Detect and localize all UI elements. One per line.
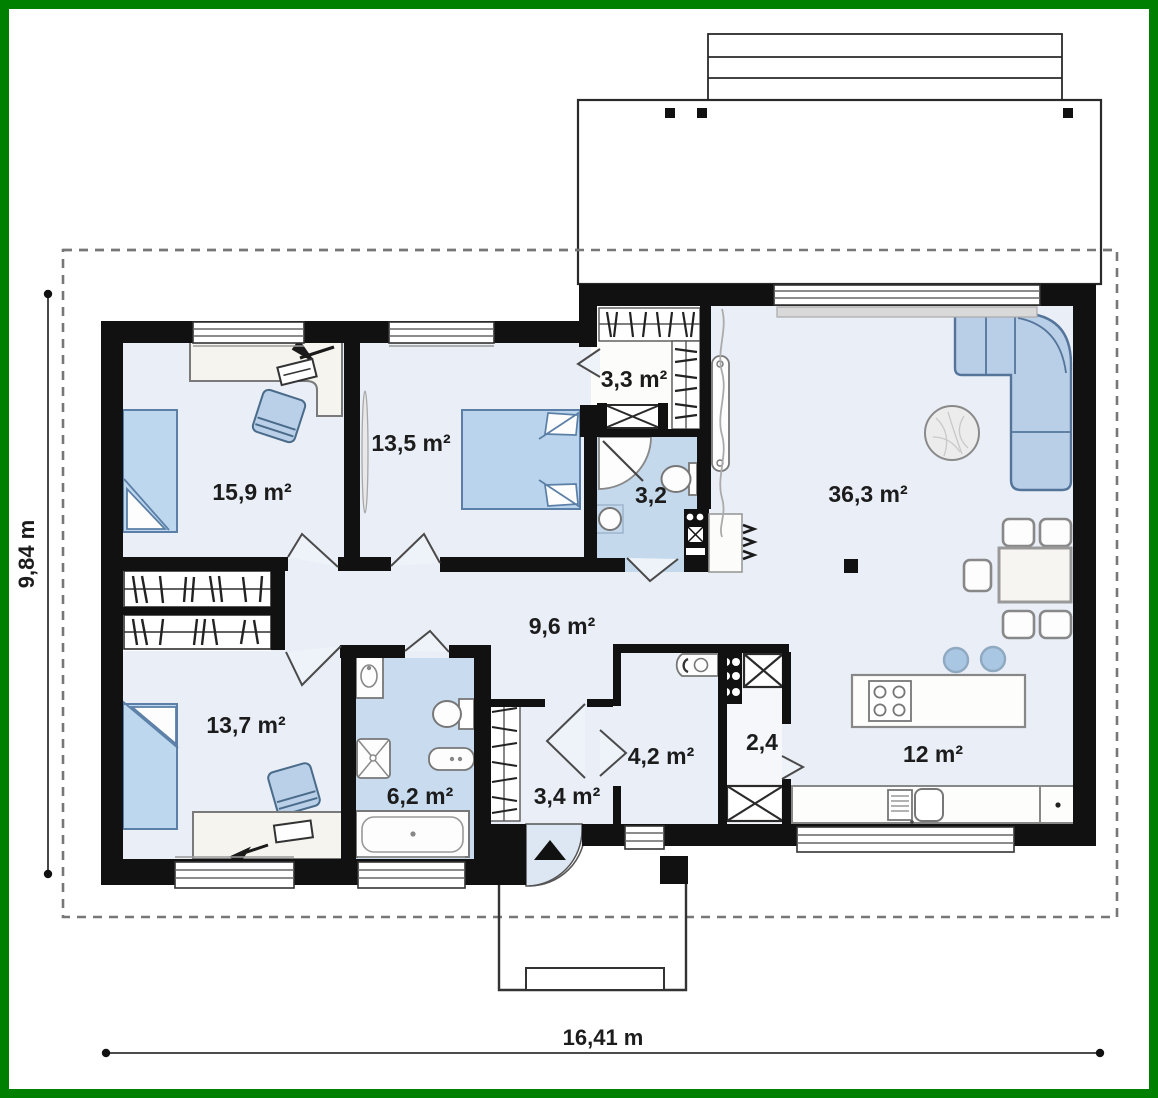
svg-text:13,7 m²: 13,7 m² [206,712,286,738]
svg-text:9,6 m²: 9,6 m² [529,613,596,639]
svg-text:13,5 m²: 13,5 m² [371,430,451,456]
svg-text:16,41 m: 16,41 m [563,1025,644,1050]
svg-text:12 m²: 12 m² [903,741,963,767]
svg-text:2,4: 2,4 [746,729,778,755]
svg-text:3,2: 3,2 [635,482,667,508]
svg-text:15,9 m²: 15,9 m² [212,479,292,505]
svg-text:4,2 m²: 4,2 m² [628,743,695,769]
svg-text:36,3 m²: 36,3 m² [828,481,908,507]
svg-text:9,84 m: 9,84 m [14,520,39,589]
svg-text:3,4 m²: 3,4 m² [534,783,601,809]
svg-text:6,2 m²: 6,2 m² [387,783,454,809]
svg-text:3,3 m²: 3,3 m² [601,366,668,392]
